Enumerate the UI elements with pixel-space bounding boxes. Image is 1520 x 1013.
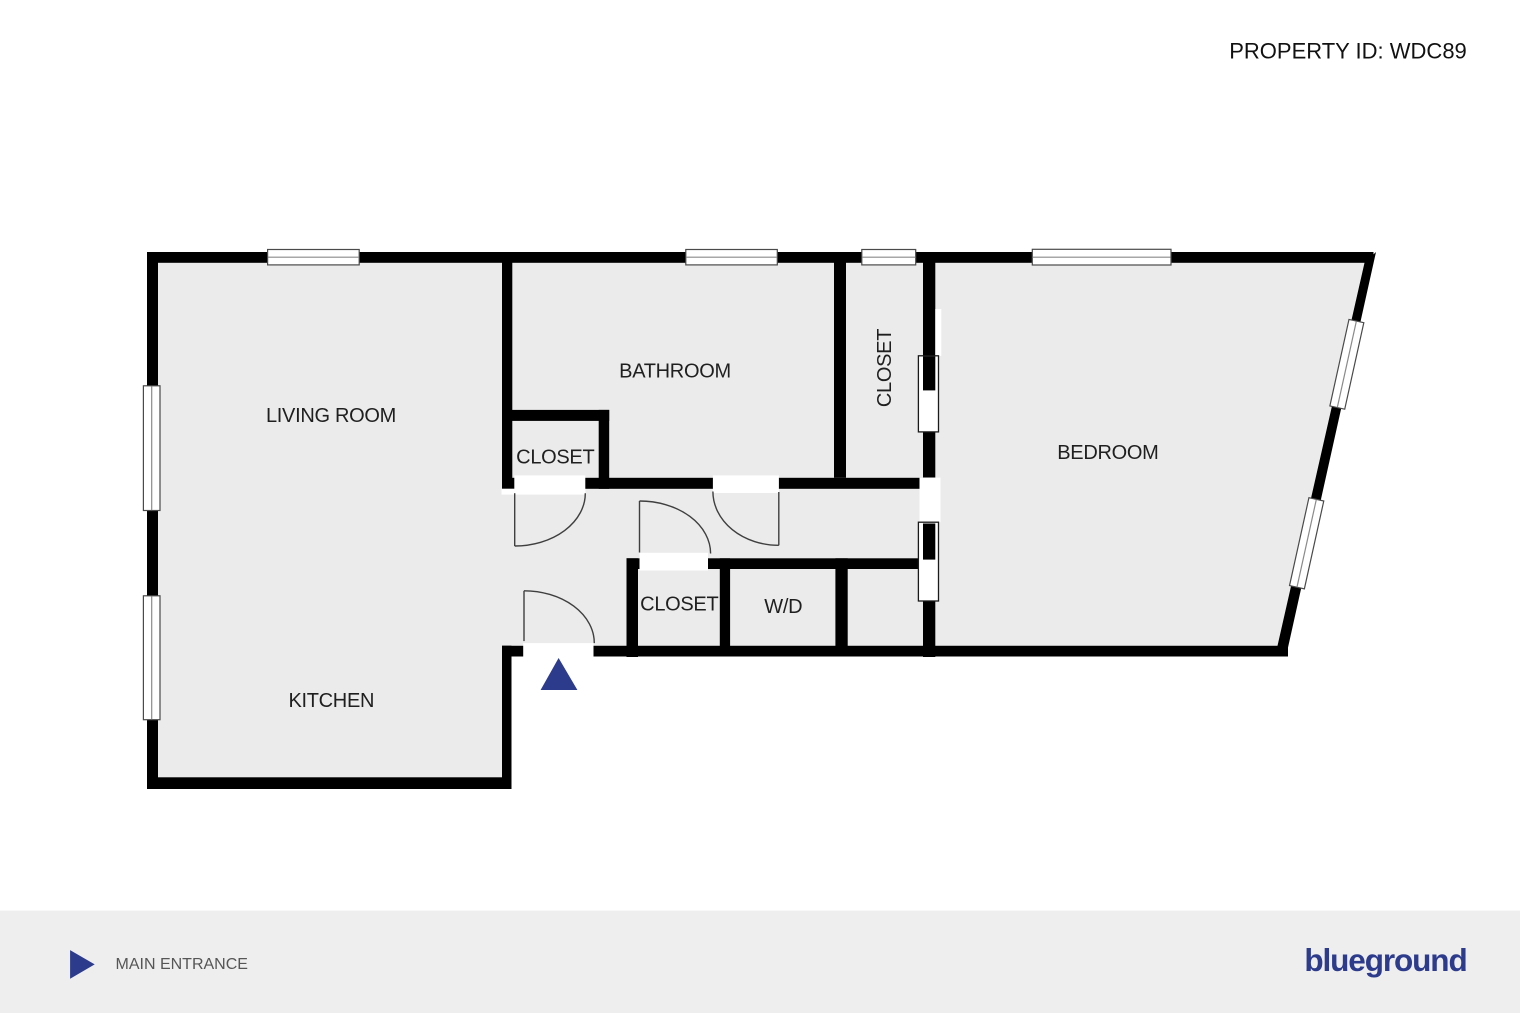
svg-text:CLOSET: CLOSET [640, 594, 718, 616]
svg-text:BEDROOM: BEDROOM [1057, 442, 1158, 464]
svg-text:W/D: W/D [764, 596, 802, 618]
svg-text:blueground: blueground [1304, 942, 1466, 978]
svg-text:MAIN ENTRANCE: MAIN ENTRANCE [116, 956, 248, 973]
svg-text:KITCHEN: KITCHEN [288, 690, 374, 712]
svg-text:CLOSET: CLOSET [874, 329, 896, 407]
svg-text:BATHROOM: BATHROOM [619, 361, 731, 383]
svg-text:CLOSET: CLOSET [516, 447, 594, 469]
svg-text:LIVING ROOM: LIVING ROOM [266, 405, 396, 427]
svg-text:PROPERTY ID: WDC89: PROPERTY ID: WDC89 [1229, 38, 1467, 63]
